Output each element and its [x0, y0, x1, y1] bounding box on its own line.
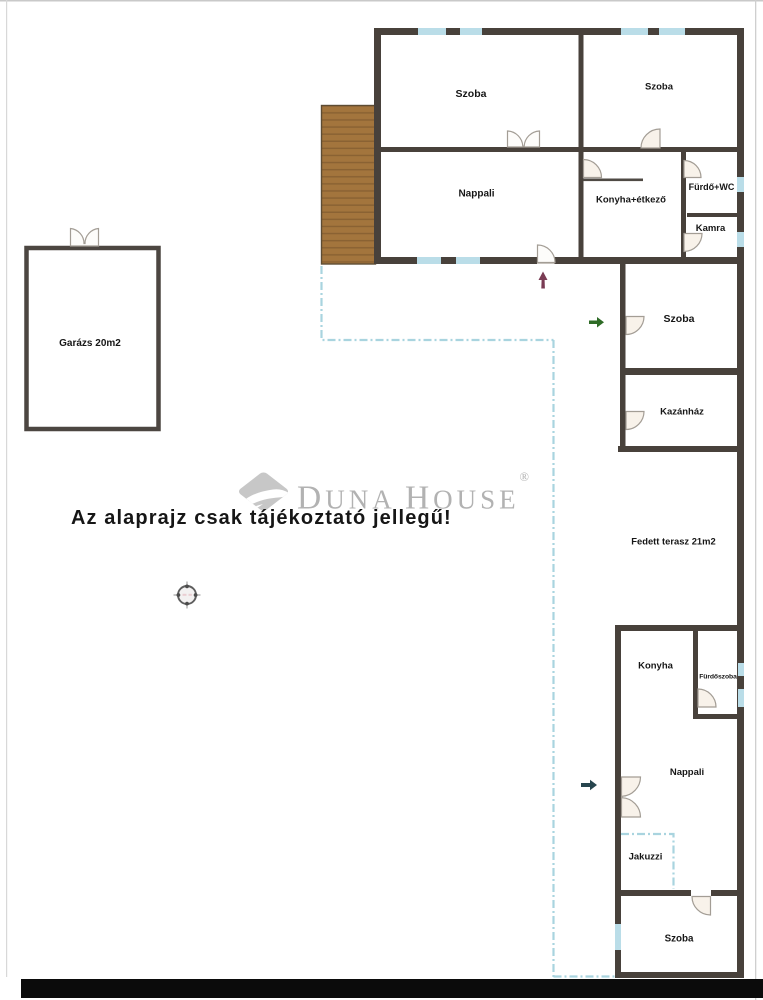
svg-text:Nappali: Nappali	[458, 189, 494, 200]
svg-text:Fürdőszoba: Fürdőszoba	[699, 674, 737, 681]
svg-text:Szoba: Szoba	[665, 934, 694, 945]
svg-text:Szoba: Szoba	[456, 88, 487, 100]
svg-text:Garázs 20m2: Garázs 20m2	[59, 338, 121, 349]
svg-text:Fürdő+WC: Fürdő+WC	[689, 182, 735, 192]
svg-text:Jakuzzi: Jakuzzi	[629, 852, 663, 863]
svg-text:Kazánház: Kazánház	[660, 407, 704, 418]
svg-text:Nappali: Nappali	[670, 767, 704, 778]
svg-text:Fedett terasz 21m2: Fedett terasz 21m2	[631, 536, 715, 547]
svg-text:®: ®	[520, 470, 530, 484]
svg-text:Konyha+étkező: Konyha+étkező	[596, 195, 666, 206]
svg-text:Szoba: Szoba	[645, 82, 674, 93]
svg-text:Szoba: Szoba	[664, 313, 695, 325]
svg-text:Kamra: Kamra	[696, 223, 726, 234]
svg-text:Konyha: Konyha	[638, 661, 674, 672]
svg-text:Az alaprajz csak tájékoztató j: Az alaprajz csak tájékoztató jellegű!	[71, 507, 452, 529]
